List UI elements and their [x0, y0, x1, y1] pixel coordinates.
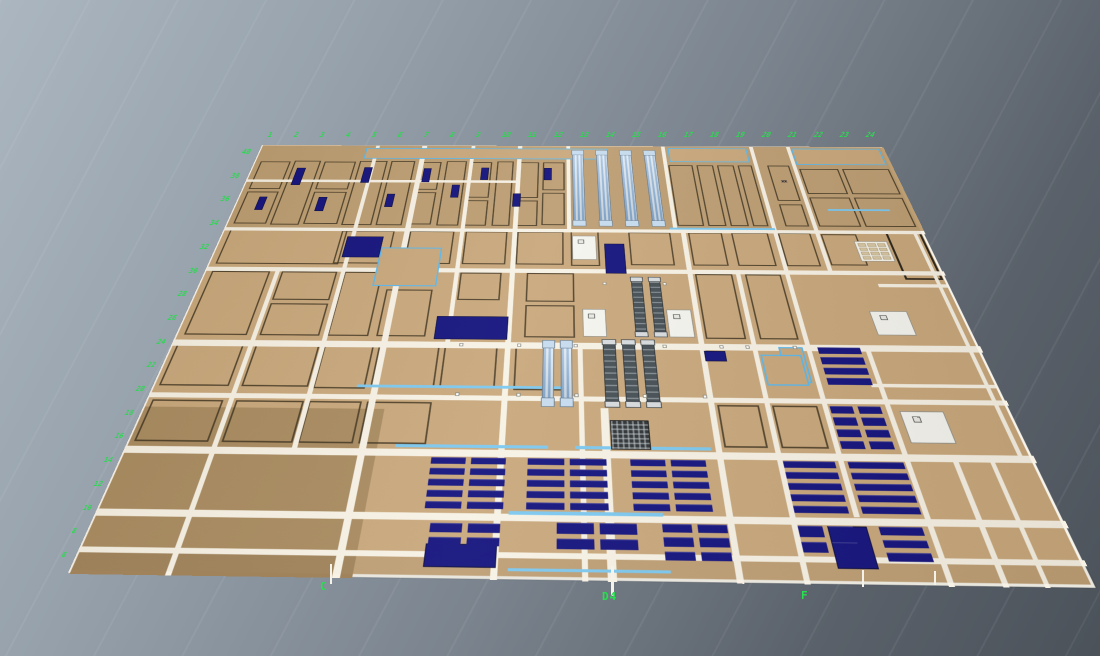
desk-row	[557, 523, 638, 535]
desk-row-segment	[570, 480, 608, 487]
desk-row	[836, 429, 891, 437]
desk-row-segment	[526, 491, 564, 498]
desk-row-segment	[785, 472, 839, 479]
axis-tick-left: 30	[188, 267, 199, 275]
rack-end-cap	[646, 401, 662, 408]
desk-row	[528, 458, 607, 465]
furniture-block	[544, 168, 552, 180]
panel-button	[872, 256, 882, 259]
desk-row	[663, 537, 730, 547]
axis-tick-left: 34	[209, 219, 220, 227]
desk-row-segment	[528, 458, 565, 465]
axis-tick-top: 17	[683, 131, 694, 139]
rack-end-cap	[542, 340, 555, 348]
grid-tick	[862, 570, 864, 587]
desk-row-segment	[869, 441, 895, 449]
axis-tick-top: 12	[553, 131, 564, 139]
axis-tick-top: 24	[865, 131, 876, 139]
desk-row-segment	[662, 524, 692, 533]
axis-tick-left: 22	[145, 361, 156, 369]
desk-row-cluster	[428, 523, 501, 547]
desk-row-segment	[470, 468, 506, 475]
room	[526, 273, 575, 302]
rack-end-cap	[648, 277, 661, 282]
rack-end-cap	[595, 150, 608, 155]
desk-row	[428, 479, 505, 487]
desk-row-segment	[466, 537, 499, 547]
rack-end-cap	[560, 340, 573, 348]
room	[731, 233, 777, 266]
rack-end-cap	[602, 339, 617, 345]
desk-row	[429, 468, 505, 476]
desk-row-segment	[823, 367, 869, 374]
desk-row-segment	[665, 551, 696, 561]
panel-button	[869, 247, 879, 250]
desk-row	[798, 526, 856, 538]
conveyor-rack	[542, 341, 555, 405]
axis-tick-top: 16	[657, 131, 668, 139]
desk-row-segment	[631, 470, 667, 477]
desk-row-segment	[886, 553, 934, 562]
desk-row-cluster	[829, 406, 895, 449]
axis-tick-top: 18	[709, 131, 720, 139]
door-marker	[574, 394, 578, 398]
desk-row-cluster	[425, 457, 506, 509]
desk-row-segment	[527, 480, 565, 487]
furniture-block	[423, 543, 497, 568]
panel-button	[859, 247, 869, 250]
grid-label: C	[320, 580, 328, 593]
desk-row-segment	[790, 494, 846, 502]
desk-row-segment	[833, 417, 858, 425]
axis-tick-top: 10	[501, 131, 512, 139]
desk-row	[631, 470, 708, 478]
desk-row	[633, 504, 713, 512]
axis-tick-left: 6	[60, 551, 67, 559]
furniture-block	[342, 236, 384, 257]
room	[159, 343, 244, 386]
axis-tick-top: 8	[449, 131, 456, 139]
desk-row-segment	[429, 468, 465, 475]
desk-row-segment	[467, 523, 500, 532]
machine	[666, 310, 695, 338]
door-marker	[643, 394, 648, 398]
axis-tick-left: 32	[198, 243, 209, 251]
desk-row-segment	[832, 542, 860, 554]
desk-row-segment	[673, 481, 710, 488]
desk-row-segment	[788, 483, 843, 491]
desk-row	[826, 378, 873, 385]
room	[462, 231, 508, 264]
desk-row	[848, 462, 906, 469]
panel-button	[877, 243, 887, 246]
highlighted-room	[791, 149, 887, 166]
rack-end-cap	[560, 398, 574, 408]
desk-row-segment	[840, 441, 866, 449]
highlighted-room	[372, 247, 442, 286]
desk-row-segment	[861, 506, 922, 514]
desk-row-segment	[836, 429, 862, 437]
axis-tick-top: 23	[839, 131, 850, 139]
storage-rack	[602, 340, 619, 406]
desk-row-cluster	[662, 524, 732, 561]
desk-row-segment	[670, 460, 706, 467]
axis-tick-top: 14	[605, 131, 616, 139]
door-marker	[745, 345, 750, 348]
room	[272, 271, 338, 300]
desk-row	[630, 459, 706, 466]
furniture-block	[480, 168, 489, 180]
desk-row-cluster	[526, 458, 609, 510]
room	[688, 232, 729, 265]
desk-row-segment	[632, 481, 668, 488]
desk-row-segment	[878, 527, 924, 536]
axis-tick-top: 7	[423, 131, 430, 139]
machine-glyph	[879, 315, 888, 320]
room	[772, 405, 829, 448]
desk-row	[886, 553, 934, 562]
desk-row-segment	[851, 473, 910, 480]
desk-row	[526, 502, 609, 510]
panel-button	[882, 256, 892, 259]
desk-row	[820, 357, 865, 364]
grid-tick	[934, 571, 936, 585]
desk-row	[861, 506, 922, 514]
axis-tick-top: 1	[267, 131, 274, 139]
axis-tick-top: 4	[345, 131, 352, 139]
furniture-block	[512, 193, 521, 206]
desk-row	[662, 524, 728, 534]
desk-row	[790, 494, 846, 502]
cyan-accent-line	[357, 384, 568, 389]
rack-end-cap	[643, 150, 656, 155]
rack-end-cap	[619, 150, 632, 155]
rack-end-cap	[640, 340, 655, 346]
desk-row-segment	[701, 552, 733, 562]
desk-row	[431, 457, 506, 464]
desk-row	[793, 506, 849, 514]
axis-tick-top: 13	[579, 131, 590, 139]
axis-tick-top: 19	[735, 131, 746, 139]
grid-tick	[330, 564, 332, 584]
desk-row-segment	[854, 484, 913, 492]
door-marker	[516, 393, 520, 397]
desk-row-segment	[697, 524, 728, 533]
room	[221, 400, 304, 443]
rack-end-cap	[541, 397, 555, 407]
desk-row	[632, 481, 710, 489]
axis-tick-left: 26	[166, 314, 177, 322]
desk-row-segment	[600, 523, 638, 534]
desk-row-segment	[865, 429, 891, 437]
furniture-block	[434, 316, 509, 340]
door-marker	[703, 395, 708, 399]
axis-tick-left: 16	[113, 432, 124, 440]
rack-end-cap	[651, 221, 666, 227]
desk-row-segment	[632, 492, 669, 499]
machine-dark	[610, 420, 651, 450]
axis-tick-top: 21	[787, 131, 798, 139]
axis-tick-left: 38	[230, 172, 241, 180]
desk-row-segment	[783, 461, 837, 468]
desk-row-segment	[829, 406, 854, 414]
machine	[572, 236, 597, 260]
door-marker	[517, 344, 521, 347]
desk-row-segment	[471, 458, 506, 465]
desk-row-segment	[570, 459, 607, 466]
desk-row	[428, 536, 500, 546]
desk-row	[833, 417, 887, 425]
desk-row-segment	[828, 526, 856, 537]
axis-tick-top: 15	[631, 131, 642, 139]
highlighted-room	[667, 148, 750, 162]
desk-row-cluster	[630, 459, 713, 511]
room	[439, 345, 498, 388]
panel-button	[861, 252, 871, 255]
desk-row-segment	[428, 479, 464, 486]
desk-row-cluster	[798, 526, 861, 554]
axis-tick-top: 9	[475, 131, 482, 139]
axis-tick-left: 10	[82, 504, 93, 512]
desk-row-segment	[426, 490, 463, 497]
desk-row	[829, 406, 882, 414]
desk-row-segment	[820, 357, 865, 364]
axis-tick-left: 8	[71, 527, 78, 535]
desk-row-segment	[826, 378, 873, 385]
desk-row	[801, 541, 860, 553]
desk-row-segment	[570, 491, 608, 498]
annotation-mark: xx	[780, 179, 787, 183]
desk-row-segment	[798, 526, 825, 537]
desk-row-segment	[429, 523, 462, 532]
room	[515, 232, 563, 265]
desk-row-segment	[848, 462, 906, 469]
axis-tick-top: 3	[319, 131, 326, 139]
desk-row-segment	[699, 538, 730, 547]
floor-plan-3d: xx	[68, 145, 1096, 588]
conveyor-rack	[561, 341, 573, 405]
door-marker	[663, 282, 667, 285]
axis-tick-left: 40	[241, 148, 252, 156]
corridor	[871, 384, 999, 389]
panel-button	[862, 256, 872, 259]
door-marker	[574, 344, 578, 347]
machine-glyph	[578, 240, 584, 244]
desk-row-segment	[801, 541, 829, 552]
cyan-accent-line	[828, 209, 891, 211]
grid-label: D4	[602, 590, 617, 603]
rack-end-cap	[572, 220, 586, 226]
axis-tick-top: 5	[371, 131, 378, 139]
desk-row	[857, 495, 917, 503]
grid-label: F	[801, 589, 809, 602]
rack-end-cap	[625, 220, 639, 226]
axis-tick-left: 28	[177, 290, 188, 298]
desk-row-segment	[674, 493, 711, 500]
desk-row-cluster	[783, 461, 849, 513]
desk-row-cluster	[817, 347, 873, 385]
machine	[899, 411, 956, 444]
panel-button	[867, 243, 877, 246]
axis-tick-left: 12	[92, 480, 103, 488]
desk-row-segment	[663, 537, 694, 546]
desk-row	[878, 527, 924, 536]
panel-button	[878, 248, 888, 251]
room	[259, 303, 328, 336]
desk-row-segment	[468, 490, 504, 497]
desk-row-segment	[672, 471, 708, 478]
desk-row-cluster	[557, 523, 639, 551]
axis-tick-top: 11	[527, 131, 538, 139]
room	[628, 232, 675, 265]
desk-row-segment	[570, 503, 609, 511]
desk-row	[823, 367, 869, 374]
desk-row	[665, 551, 733, 561]
rack-end-cap	[599, 220, 613, 226]
desk-row-segment	[425, 501, 462, 509]
furniture-block	[604, 244, 626, 274]
desk-row-segment	[630, 459, 666, 466]
desk-row-segment	[857, 406, 882, 414]
desk-row-segment	[557, 523, 594, 534]
desk-row	[788, 483, 843, 491]
desk-row	[557, 538, 639, 550]
desk-row	[632, 492, 711, 500]
desk-row-segment	[633, 504, 670, 512]
desk-row	[527, 469, 607, 477]
machine	[582, 309, 607, 337]
room	[717, 405, 768, 448]
axis-tick-top: 2	[293, 131, 300, 139]
desk-row-segment	[882, 540, 929, 549]
axis-tick-left: 24	[156, 338, 167, 346]
desk-row-segment	[428, 536, 462, 546]
machine	[869, 311, 917, 336]
axis-tick-left: 20	[135, 385, 146, 393]
room	[457, 272, 502, 300]
rack-end-cap	[635, 331, 649, 337]
desk-row	[527, 480, 608, 488]
desk-row	[785, 472, 839, 479]
rack-end-cap	[571, 150, 584, 155]
desk-row-segment	[526, 502, 564, 510]
rack-end-cap	[630, 277, 643, 282]
furniture-block	[704, 351, 727, 362]
desk-row-segment	[857, 495, 917, 503]
desk-row-segment	[817, 347, 862, 354]
rack-end-cap	[605, 401, 621, 408]
desk-row	[425, 501, 504, 509]
desk-row	[851, 473, 910, 480]
desk-row-segment	[861, 418, 887, 426]
rack-end-cap	[654, 332, 668, 338]
cad-viewport[interactable]: xx 4038363432302826242220181614121086123…	[0, 0, 1100, 656]
door-marker	[792, 346, 797, 349]
desk-row-segment	[467, 502, 504, 510]
desk-row-segment	[527, 469, 564, 476]
rack-end-cap	[621, 339, 636, 345]
machine-glyph	[588, 314, 595, 319]
desk-row	[817, 347, 862, 354]
rack-end-cap	[625, 401, 641, 408]
desk-row-cluster	[878, 527, 934, 562]
axis-tick-top: 22	[813, 131, 824, 139]
desk-row	[429, 523, 500, 533]
storage-rack	[631, 278, 648, 336]
desk-row-segment	[557, 538, 595, 550]
axis-tick-left: 36	[219, 195, 230, 203]
axis-tick-top: 6	[397, 131, 404, 139]
desk-row-segment	[431, 457, 466, 464]
panel-button	[880, 252, 890, 255]
desk-row-segment	[675, 504, 713, 512]
panel-button	[857, 243, 866, 246]
room	[524, 305, 575, 338]
highlighted-room	[760, 355, 810, 386]
door-marker	[603, 282, 607, 285]
desk-row	[840, 441, 895, 450]
panel-button	[870, 252, 880, 255]
room	[241, 344, 320, 387]
desk-row-segment	[600, 539, 638, 551]
room	[215, 229, 348, 264]
desk-row	[854, 484, 913, 492]
desk-row	[526, 491, 608, 499]
desk-row-segment	[793, 506, 849, 514]
door-marker	[719, 345, 724, 348]
desk-row	[783, 461, 837, 468]
room	[541, 193, 565, 225]
desk-row-segment	[570, 469, 607, 476]
axis-tick-top: 20	[761, 131, 772, 139]
axis-tick-left: 14	[103, 456, 114, 464]
desk-row-segment	[469, 479, 505, 486]
door-marker	[459, 343, 463, 346]
axis-tick-left: 18	[124, 409, 135, 417]
door-marker	[662, 345, 666, 348]
door-marker	[455, 392, 460, 396]
machine-glyph	[912, 417, 922, 423]
machine-glyph	[673, 314, 681, 319]
storage-rack	[649, 278, 667, 336]
desk-row	[426, 490, 504, 498]
desk-row	[882, 540, 929, 549]
